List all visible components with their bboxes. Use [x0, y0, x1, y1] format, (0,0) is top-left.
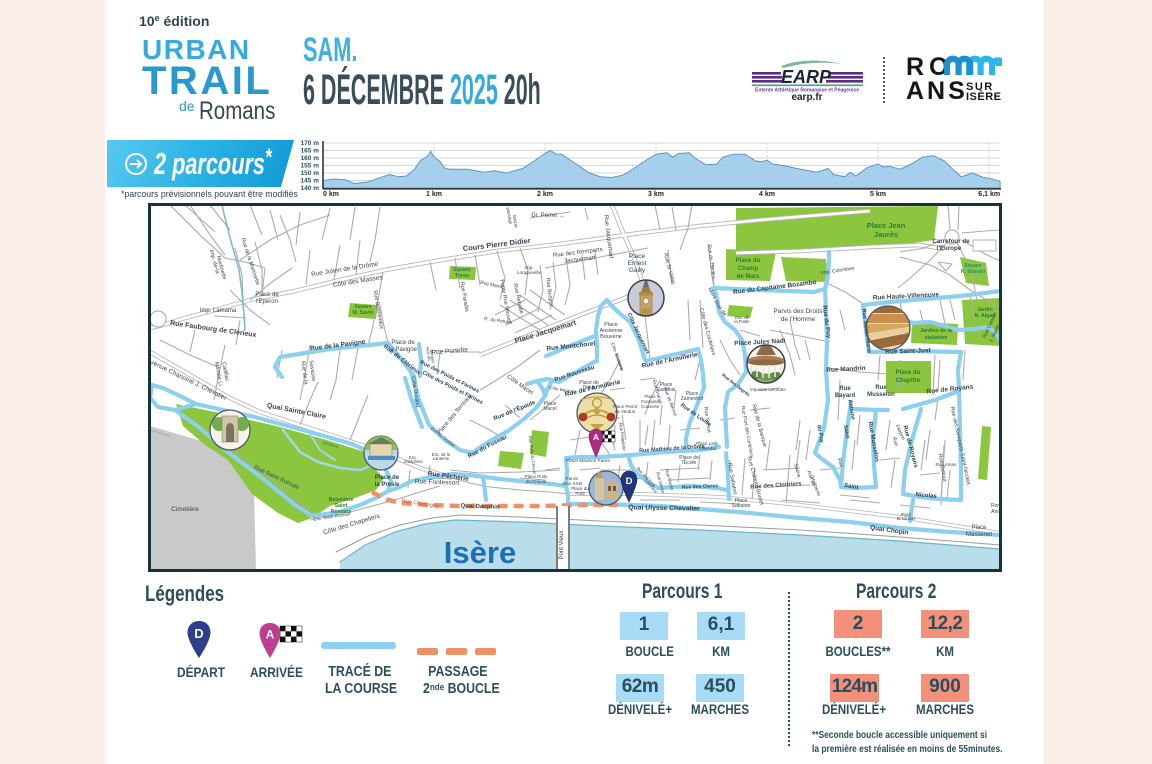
svg-text:Toros: Toros [455, 273, 469, 279]
svg-text:Cimetière: Cimetière [171, 506, 199, 513]
svg-text:Joséphine: Joséphine [403, 459, 423, 464]
svg-text:Rue: Rue [839, 386, 851, 392]
svg-text:170 m: 170 m [301, 140, 320, 147]
svg-text:Couverte: Couverte [641, 404, 660, 409]
svg-text:l'Europe: l'Europe [937, 245, 962, 252]
svg-text:150 m: 150 m [301, 170, 320, 177]
svg-text:Macel: Macel [543, 406, 556, 412]
svg-text:Jardins de la: Jardins de la [920, 328, 952, 334]
svg-text:2 km: 2 km [537, 191, 553, 198]
svg-text:Rue Aman: Rue Aman [935, 462, 957, 467]
svg-text:Bouverie: Bouverie [600, 334, 622, 340]
svg-text:Jaurès: Jaurès [874, 230, 898, 239]
svg-text:3 km: 3 km [648, 191, 664, 198]
svg-text:Place du: Place du [736, 258, 761, 264]
svg-text:1 km: 1 km [426, 191, 442, 198]
svg-text:6,1 km: 6,1 km [978, 191, 1000, 198]
svg-text:Sabaton: Sabaton [732, 503, 751, 509]
svg-text:N. Mandel: N. Mandel [961, 269, 986, 275]
svg-text:Lanterne: Lanterne [433, 456, 450, 461]
svg-text:Place de: Place de [391, 340, 415, 346]
svg-text:Musselon: Musselon [867, 392, 895, 398]
svg-text:145 m: 145 m [301, 178, 320, 185]
svg-text:165 m: 165 m [301, 148, 320, 155]
svg-text:Pont: Pont [575, 491, 585, 496]
svg-text:Pont Vieux: Pont Vieux [559, 531, 565, 560]
svg-text:Place de: Place de [255, 292, 279, 298]
svg-text:la Poste: la Poste [734, 319, 750, 324]
svg-text:4 km: 4 km [759, 191, 775, 198]
svg-text:5 km: 5 km [870, 191, 886, 198]
svg-text:0 km: 0 km [323, 191, 339, 198]
svg-text:Place du: Place du [896, 370, 921, 376]
svg-text:Imp. Lamama: Imp. Lamama [200, 308, 237, 314]
svg-text:Impasse Lecoutre: Impasse Lecoutre [750, 387, 786, 392]
svg-text:ANS: ANS [906, 77, 968, 104]
svg-text:de l'Homme: de l'Homme [781, 316, 816, 323]
svg-text:EARP: EARP [781, 67, 832, 87]
svg-text:Place: Place [629, 253, 646, 260]
svg-text:earp.fr: earp.fr [791, 92, 822, 103]
svg-text:Jean XXIII: Jean XXIII [562, 481, 583, 486]
svg-text:Isère: Isère [444, 535, 516, 570]
svg-text:ISÈRE: ISÈRE [966, 90, 1002, 103]
svg-text:visitation: visitation [925, 335, 948, 341]
svg-text:140 m: 140 m [301, 185, 320, 192]
svg-text:Ernest: Ernest [628, 260, 647, 267]
svg-text:l'Eperon: l'Eperon [256, 299, 278, 305]
svg-text:M. Savin: M. Savin [352, 310, 373, 316]
svg-text:Tollendal: Tollendal [698, 446, 716, 451]
svg-text:155 m: 155 m [301, 163, 320, 170]
svg-text:Place Maurice Faure: Place Maurice Faure [566, 458, 611, 464]
svg-text:Massenet: Massenet [966, 532, 992, 538]
svg-text:de Verdun: de Verdun [615, 409, 636, 414]
svg-text:de Mars: de Mars [737, 274, 760, 280]
svg-text:Gailly: Gailly [629, 267, 646, 274]
svg-text:Champ: Champ [738, 266, 759, 272]
svg-text:Carrefour de: Carrefour de [932, 238, 970, 245]
svg-text:Rue: Rue [875, 385, 887, 391]
svg-text:Chapitre: Chapitre [896, 378, 921, 384]
svg-text:St Nicolas: St Nicolas [897, 516, 916, 521]
svg-text:A: A [266, 628, 275, 642]
svg-text:la Presle: la Presle [375, 482, 400, 488]
svg-text:Place: Place [971, 525, 987, 531]
svg-text:l'École: l'École [682, 459, 697, 466]
svg-text:160 m: 160 m [301, 155, 320, 162]
svg-text:Dr. Perret →: Dr. Perret → [531, 213, 564, 219]
svg-text:Gondois: Gondois [657, 387, 676, 393]
svg-text:Place Jean: Place Jean [867, 221, 906, 230]
svg-text:D: D [626, 476, 633, 487]
svg-text:Place de: Place de [375, 475, 400, 481]
svg-text:Parvis des Droits: Parvis des Droits [773, 308, 823, 315]
svg-text:A: A [593, 432, 599, 442]
svg-text:du Cheval: du Cheval [526, 479, 546, 484]
svg-text:Quai Ulysse Chevalier: Quai Ulysse Chevalier [628, 504, 700, 512]
svg-text:Bayard: Bayard [835, 393, 856, 399]
svg-text:Longueville: Longueville [517, 270, 542, 276]
svg-text:D: D [194, 626, 203, 641]
svg-text:Zamenhof: Zamenhof [681, 396, 704, 402]
